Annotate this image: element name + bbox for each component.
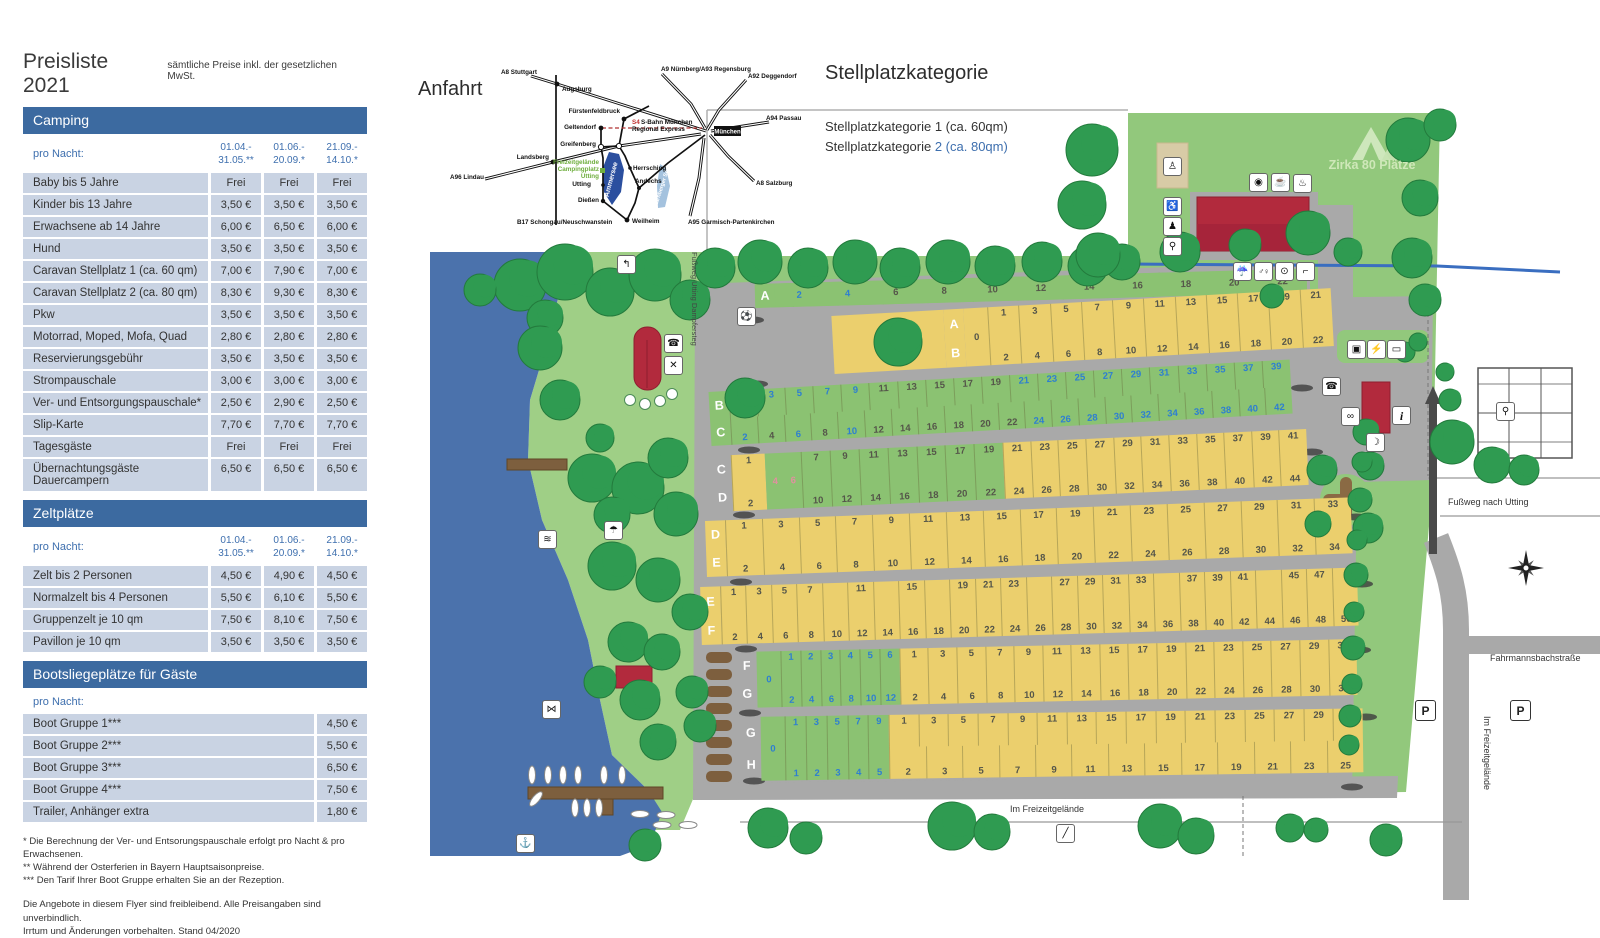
price-value: 6,50 € (264, 217, 314, 237)
row-label: G (746, 726, 756, 740)
pitch-number: 25 (1252, 642, 1263, 653)
pitch-cell: 15 (898, 580, 924, 610)
price-value: 3,50 € (317, 349, 367, 369)
price-row-label: Reservierungsgebühr (23, 349, 208, 369)
pitch-cell: 13 (1174, 295, 1207, 326)
pitch-cell: 9 (830, 449, 860, 478)
price-row-label: Kinder bis 13 Jahre (23, 195, 208, 215)
pitch-cell: 31 (1102, 574, 1128, 604)
pitch-number: 36 (1194, 406, 1205, 418)
pitch-cell: 5 (956, 647, 985, 676)
pitch-number: 33 (1136, 575, 1147, 586)
pitch-cell: 44 (1280, 457, 1309, 486)
pitch-cell: 35 (1196, 433, 1225, 462)
pitch-number: 34 (1329, 542, 1340, 553)
pitch-number: 16 (908, 627, 919, 638)
pitch-number: 5 (978, 766, 983, 777)
pitch-cell: 38 (1211, 389, 1239, 417)
pitch-cell: 3 (757, 388, 787, 417)
pitch-number: 31 (1291, 500, 1302, 511)
anfahrt-title: Anfahrt (418, 78, 482, 101)
pitch-number: 41 (1238, 572, 1249, 583)
pitch-cell: 29 (1299, 640, 1328, 669)
row-labels: DE (705, 520, 727, 577)
pitch-cell: 14 (1071, 672, 1100, 701)
pitch-cell: 9 (1035, 744, 1072, 777)
pitch-number: 30 (1114, 411, 1125, 423)
pitch-cell: 22 (1094, 533, 1132, 562)
pitch-number: 3 (756, 586, 762, 597)
pitch-number: 18 (928, 490, 939, 501)
pitch-number: 2 (814, 768, 819, 779)
season-column-header: 01.06.-20.09.* (264, 534, 314, 560)
pitch-cell (1255, 570, 1281, 600)
pitch-cell: 27 (1085, 438, 1114, 467)
pitch-cell: 47 (1306, 568, 1332, 598)
pitch-number: 25 (1340, 760, 1351, 771)
anfahrt-label-andechs: Andechs (635, 178, 662, 185)
pitch-cell: 10 (860, 677, 880, 705)
pitch-cell: 26 (1243, 669, 1272, 698)
disclaimer-line: Irrtum und Änderungen vorbehalten. Stand… (23, 925, 367, 938)
pitch-cell: 5 (962, 745, 999, 778)
pitch-number: 13 (959, 512, 970, 523)
pitch-number: 28 (1087, 412, 1098, 424)
pitch-number: 39 (1271, 361, 1282, 373)
phone-reception-icon: ☎ (1322, 377, 1341, 396)
pitch-cell: 15 (1206, 293, 1239, 324)
pitch-number: 34 (1152, 480, 1163, 491)
pitch-number: 18 (1180, 278, 1191, 289)
pitch-cell: 14 (947, 539, 985, 568)
pitch-row-bottom: 2 (732, 482, 768, 512)
pitch-number: 18 (953, 420, 964, 432)
pitch-number: 25 (1067, 440, 1078, 451)
cooking-icon: ♨ (1293, 174, 1312, 193)
pitch-cell: 1 (780, 651, 800, 679)
row-label: H (747, 758, 756, 772)
pitch-number: 6 (795, 429, 801, 440)
price-value: Frei (264, 173, 314, 193)
pricelist-title: Preisliste 2021 (23, 50, 160, 98)
pitch-cell: 3 (918, 714, 948, 746)
pitch-cell: 48 (1307, 597, 1333, 627)
pitch-number: 10 (846, 426, 857, 438)
pitch-cell: 21 (1009, 374, 1039, 403)
price-value: 3,50 € (211, 305, 261, 325)
pitch-number: 29 (1130, 369, 1141, 381)
pitch-cell: 5 (799, 516, 837, 545)
pitch-cell: 21 (975, 578, 1001, 608)
pitch-cell: 8 (810, 412, 838, 440)
pitch-number: 17 (962, 378, 973, 390)
anfahrt-label-a95: A95 Garmisch-Partenkirchen (688, 219, 775, 226)
pitch-number: 4 (941, 692, 947, 703)
price-row-label: Erwachsene ab 14 Jahre (23, 217, 208, 237)
pitch-cell: 1 (889, 715, 919, 747)
pitch-cell: 1 (987, 306, 1020, 337)
pitch-cell: 22 (1301, 317, 1334, 348)
pitch-cell: 23 (1130, 504, 1168, 533)
pitch-cell: 40 (1205, 600, 1231, 630)
pitch-number: 27 (1217, 503, 1228, 514)
pitch-cell: 0 (761, 716, 786, 780)
pitch-cell: 28 (1271, 668, 1300, 697)
pitch-number: 42 (1262, 475, 1273, 486)
power-socket-icon: ⊙ (1275, 262, 1294, 281)
anfahrt-label-a9: A9 Nürnberg/A93 Regensburg (661, 66, 751, 73)
autobahn-fill (485, 74, 769, 216)
pitch-cell: 13 (897, 380, 927, 409)
pitch-cell: 4 (757, 415, 785, 443)
stellplatz-title: Stellplatzkategorie (825, 62, 1008, 85)
anfahrt-label-greifenberg: Greifenberg (560, 141, 596, 148)
pitch-cell: 2 (806, 748, 827, 780)
pitch-number: 19 (1231, 762, 1242, 773)
pitch-cell: 3 (820, 650, 840, 678)
pitch-cell: 12 (1016, 275, 1065, 300)
pitch-rows: 12345624681012 (780, 649, 900, 707)
pitch-number: 30 (1096, 482, 1107, 493)
price-value: 3,50 € (317, 305, 367, 325)
bus-icon: ▣ (1347, 340, 1366, 359)
pitch-cell: 1 (785, 716, 806, 748)
section-heading: Bootsliegeplätze für Gäste (23, 661, 367, 688)
pitch-cell: 18 (1161, 271, 1210, 296)
pitch-cell: 26 (1168, 531, 1206, 560)
pitch-number: 27 (1280, 641, 1291, 652)
pitch-number: 1 (740, 391, 746, 402)
pitch-cell: 30 (1241, 528, 1279, 557)
camper-service-icon: ▭ (1387, 340, 1406, 359)
pitch-number: 33 (1177, 435, 1188, 446)
pitch-number: 32 (1338, 683, 1349, 694)
price-value: 7,50 € (211, 610, 261, 630)
pitch-cell: 1 (728, 389, 758, 418)
pitch-number: 23 (1046, 374, 1057, 386)
pitch-cell: 8 (840, 677, 860, 705)
footnote: * Die Berechnung der Ver- und Entsorungs… (23, 835, 367, 861)
pitch-cell: 28 (1059, 467, 1088, 496)
pitch-cell: 15 (1096, 712, 1126, 744)
pitch-cell: 19 (974, 443, 1004, 472)
pitch-cell: 9 (841, 383, 871, 412)
pitch-cell: 29 (1240, 500, 1278, 529)
pitch-number: 39 (1260, 432, 1271, 443)
pitch-number: 24 (1145, 549, 1156, 560)
pitch-segment: 1357911131517192123252729312357911131517… (889, 708, 1364, 779)
pitch-cell: 19 (1268, 290, 1301, 321)
pitch-number: 12 (1035, 282, 1046, 293)
pitch-cell: 17 (1237, 292, 1270, 323)
anfahrt-label-camp3: Utting (581, 173, 599, 180)
pitch-cell: 18 (917, 473, 947, 502)
pitch-number: 15 (1106, 713, 1117, 724)
price-value: Frei (211, 173, 261, 193)
section-heading: Zeltplätze (23, 500, 367, 527)
pitch-number: 1 (794, 768, 799, 779)
pitch-number: 5 (877, 767, 882, 778)
pitch-cell: 5 (1050, 302, 1083, 333)
pitch-cell: 24 (1024, 400, 1052, 428)
anfahrt-label-ffb: Fürstenfeldbruck (569, 108, 621, 115)
pitch-cell: 32 (1103, 603, 1129, 633)
pitch-number: 2 (906, 767, 911, 778)
anfahrt-label-landsberg: Landsberg (517, 154, 549, 161)
pitch-cell: 40 (1225, 459, 1254, 488)
pitch-cell: 0 (756, 651, 781, 707)
pitch-cell: 42 (1230, 600, 1256, 630)
pitch-cell: 6 (871, 279, 920, 304)
pitch-number: 46 (1290, 615, 1301, 626)
pitch-number: 9 (1126, 300, 1132, 311)
pitch-cell: 29 (1121, 367, 1151, 396)
pitch-cell: 15 (1099, 644, 1128, 673)
pitch-cell: 38 (1180, 601, 1206, 631)
pitch-number: 1 (1001, 307, 1007, 318)
price-value: 7,50 € (317, 780, 367, 800)
pitch-cell: 40 (1238, 388, 1266, 416)
pitch-number: 12 (885, 693, 896, 704)
dishwashing-icon: ☕ (1271, 173, 1290, 192)
pitch-number: 4 (769, 430, 775, 441)
pitch-cell: 31 (1277, 499, 1315, 528)
pitch-cell: 15 (1144, 743, 1181, 776)
pitch-number: 9 (842, 451, 848, 462)
pitch-cell: 25 (1244, 710, 1274, 742)
pitch-cell: 5 (860, 649, 880, 677)
pitch-number: 33 (1327, 499, 1338, 510)
anfahrt-label-camp1: Freizeitgelände (553, 159, 599, 166)
pitch-number: 3 (931, 715, 936, 726)
price-value: 3,00 € (264, 371, 314, 391)
pitch-cell: 17 (1019, 508, 1057, 537)
restaurant-icon: ✕ (664, 356, 683, 375)
pitch-number: 16 (1110, 688, 1121, 699)
price-value: 3,50 € (317, 632, 367, 652)
row-label: D (718, 490, 728, 504)
pitch-cell: 10 (968, 277, 1017, 302)
pitch-cell: 34 (1129, 603, 1155, 633)
pitch-cell: 18 (1020, 536, 1058, 565)
footnotes: * Die Berechnung der Ver- und Entsorungs… (23, 835, 367, 887)
pitch-cell: 31 (1141, 435, 1170, 464)
pitch-number: 18 (1035, 553, 1046, 564)
row-label: C (717, 462, 727, 476)
pitch-number: 25 (1254, 711, 1265, 722)
price-value: 3,00 € (211, 371, 261, 391)
pitch-number: 5 (969, 648, 975, 659)
pitch-number: 11 (1047, 714, 1057, 725)
pitch-cell: 26 (1031, 468, 1060, 497)
pitch-number: 29 (1122, 438, 1133, 449)
table-tennis-icon: ⚲ (1496, 402, 1515, 421)
price-row-label: Caravan Stellplatz 2 (ca. 80 qm) (23, 283, 208, 303)
pitch-number: 21 (1195, 712, 1206, 723)
pitch-number: 19 (1166, 644, 1177, 655)
pitch-segment: 01357912345 (761, 715, 890, 781)
pitch-number: 26 (1253, 685, 1264, 696)
price-table: Boot Gruppe 1***4,50 €Boot Gruppe 2***5,… (23, 714, 367, 822)
pitch-number: 3 (835, 768, 840, 779)
pitch-cell: 17 (953, 377, 983, 406)
stellplatz-panel: Stellplatzkategorie Stellplatzkategorie … (825, 62, 1008, 157)
pitch-number: 36 (1179, 478, 1190, 489)
pitch-cell: 37 (1233, 361, 1263, 390)
bike-rental-icon: ∞ (1341, 407, 1360, 426)
pitch-cell: 12 (1043, 673, 1072, 702)
price-row-label: Motorrad, Moped, Mofa, Quad (23, 327, 208, 347)
price-value: 2,80 € (317, 327, 367, 347)
pitch-cell: 13 (1066, 712, 1096, 744)
pitch-number: 30 (1310, 684, 1321, 695)
pitch-cell: 18 (925, 609, 951, 639)
pitch-number: 21 (1267, 762, 1278, 773)
pitch-number: 8 (998, 690, 1004, 701)
pitch-cell: 10 (1014, 674, 1043, 703)
pitch-cell: 15 (916, 445, 946, 474)
pitch-cell: 23 (1000, 577, 1026, 607)
pitch-number: 2 (1003, 352, 1009, 363)
pitch-cell: 12 (880, 677, 900, 705)
pitch-cell: 7 (813, 385, 843, 414)
pitch-number: 18 (1138, 687, 1149, 698)
pitch-number: 15 (1109, 645, 1120, 656)
pitch-cell: 32 (1328, 667, 1357, 696)
pitch-cell: 7 (835, 515, 873, 544)
pitch-cell (1153, 573, 1179, 603)
pitch-cell: 33 (1168, 434, 1197, 463)
pitch-number: 23 (1223, 643, 1234, 654)
pitch-cell: 30 (1078, 604, 1104, 634)
pitch-number: 5 (1063, 304, 1069, 315)
pitch-row-bottom: 235791113151719212325 (889, 740, 1363, 779)
trailer-spot (706, 703, 732, 714)
pitch-rows: 1357911131517192123252729312357911131517… (889, 708, 1364, 779)
pitch-number: 9 (1026, 647, 1032, 658)
pitch-row-bottom: 12345 (785, 747, 890, 780)
pitch-cell: 16 (1113, 273, 1162, 298)
pitch-cell: 13 (946, 511, 984, 540)
pitch-cell: 6 (772, 613, 798, 643)
pitch-number: 5 (835, 717, 840, 728)
pitch-cell: 14 (874, 610, 900, 640)
pitch-cell: 22 (997, 401, 1025, 429)
column-header-row: pro Nacht:01.04.-31.05.**01.06.-20.09.*2… (23, 134, 367, 173)
pitch-cell: 32 (1114, 464, 1143, 493)
price-value: 3,00 € (317, 371, 367, 391)
pitch-number: 2 (742, 432, 748, 443)
anfahrt-label-s4: S4 (632, 119, 640, 126)
pitch-cell (822, 583, 848, 613)
row-label: G (742, 687, 752, 701)
charging-icon: ⚡ (1367, 340, 1386, 359)
pricelist-panel: Preisliste 2021 sämtliche Preise inkl. d… (23, 50, 367, 938)
fahrmannsbach-street-label: Fahrmannsbachstraße (1490, 653, 1581, 663)
pitch-cell: 6 (800, 544, 838, 573)
pitch-number: 32 (1112, 621, 1123, 632)
pitch-number: 31 (1110, 576, 1121, 587)
hand-shower-icon: ⚲ (1163, 237, 1182, 256)
pitch-rows: 79111315171910121416182022 (801, 443, 1005, 508)
pitch-cell: 39 (1204, 571, 1230, 601)
price-value: 6,50 € (264, 459, 314, 491)
pitch-number: 13 (1122, 764, 1133, 775)
pitch-cell: 12 (864, 409, 892, 437)
price-value: 8,30 € (211, 283, 261, 303)
pitch-number: 13 (1185, 297, 1196, 309)
pitch-number: 0 (974, 331, 980, 342)
pitch-cell: 13 (1108, 743, 1145, 776)
pitch-cell: 19 (1217, 742, 1254, 775)
pitch-number: 0 (770, 743, 775, 754)
pitch-cell: 17 (1128, 643, 1157, 672)
pitch-cell: 37 (1223, 431, 1252, 460)
pitch-number: 19 (983, 444, 994, 455)
pitch-number: 12 (924, 557, 935, 568)
anfahrt-label-a92: A92 Deggendorf (748, 73, 798, 80)
price-row-label: Gruppenzelt je 10 qm (23, 610, 208, 630)
pitch-cell: 41 (1279, 429, 1308, 458)
pitch-number: 32 (1140, 409, 1151, 421)
pitch-cell: 8 (1082, 329, 1115, 360)
disclaimer-line: Die Angebote in diesem Flyer sind freibl… (23, 898, 367, 924)
price-row-label: Boot Gruppe 4*** (23, 780, 314, 800)
pitch-cell: 24 (1214, 669, 1243, 698)
pitch-cell: 25 (1167, 503, 1205, 532)
row-label: B (951, 345, 961, 359)
playground-icon: ♙ (1163, 157, 1182, 176)
parking-icon: P (1510, 700, 1531, 721)
pitch-number: 7 (852, 516, 858, 527)
pitch-number: 5 (815, 518, 821, 529)
pitch-cell: 3 (827, 748, 848, 780)
pitch-cell: 4 (928, 675, 957, 704)
pitch-number: 39 (1212, 573, 1223, 584)
price-value: 8,30 € (317, 283, 367, 303)
pitch-cell: 27 (1274, 709, 1304, 741)
row-label: A (760, 289, 769, 303)
pitch-number: 27 (1284, 710, 1295, 721)
price-table: Baby bis 5 JahreFreiFreiFreiKinder bis 1… (23, 173, 367, 491)
pitch-cell: 33 (1177, 364, 1207, 393)
pitch-number: 0 (766, 674, 772, 685)
pitch-number: 4 (1034, 350, 1040, 361)
pitch-cell: 7 (801, 451, 831, 480)
pitch-cell: 34 (1315, 525, 1353, 554)
pitch-cell: 31 (1333, 708, 1363, 740)
pitch-number: 41 (1288, 430, 1299, 441)
pitch-number: 42 (1274, 402, 1285, 414)
row-label: E (706, 594, 715, 608)
pitch-cell: 18 (1238, 321, 1271, 352)
row-label: F (707, 623, 715, 637)
per-night-label: pro Nacht: (23, 148, 208, 160)
pitch-number: 23 (1008, 579, 1019, 590)
pitch-cell: 11 (1037, 712, 1067, 744)
band-pad (831, 310, 946, 374)
pitch-cell: 9 (1112, 299, 1145, 330)
pitch-number: 9 (1051, 765, 1056, 776)
pitch-cell: 3 (926, 746, 963, 779)
pitch-row-top: 13579 (785, 715, 890, 748)
pitch-number: 23 (1224, 711, 1235, 722)
pitch-cell: 6 (957, 675, 986, 704)
pitch-number: 16 (1219, 340, 1230, 352)
hairdryer-icon: ⌐ (1296, 262, 1315, 281)
pitch-cell: 11 (1042, 645, 1071, 674)
trailer-spot (706, 737, 732, 748)
